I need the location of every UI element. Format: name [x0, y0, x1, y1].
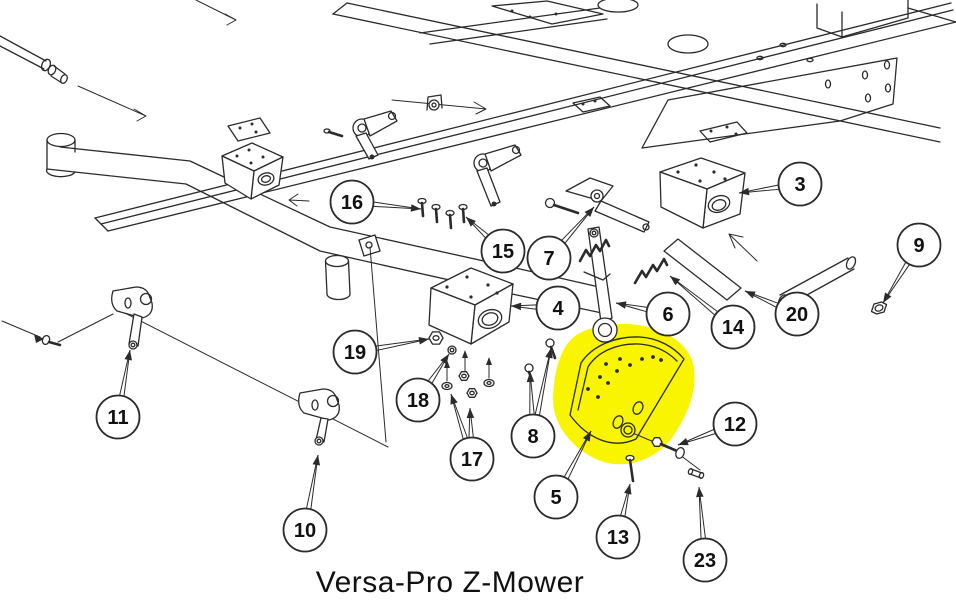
balloon-8: 8 — [512, 348, 555, 458]
balloon-13-number: 13 — [607, 527, 629, 549]
balloon-9-number: 9 — [913, 235, 924, 257]
diagram-caption: Versa-Pro Z-Mower — [0, 566, 900, 600]
balloon-6-number: 6 — [662, 304, 673, 326]
balloon-19-number: 19 — [344, 342, 366, 364]
balloon-12-number: 12 — [724, 414, 746, 436]
deck-frame-line-art — [0, 0, 956, 261]
caster-mount-part3 — [660, 158, 745, 228]
balloon-5-number: 5 — [550, 487, 561, 509]
balloon-7-number: 7 — [543, 248, 554, 270]
balloon-layer: 1615739461420191817811105121323 — [97, 163, 941, 582]
balloon-4: 4 — [511, 287, 580, 330]
balloon-20: 20 — [745, 291, 819, 336]
balloon-16-number: 16 — [341, 192, 363, 214]
balloon-4-number: 4 — [552, 298, 564, 320]
balloon-7: 7 — [528, 207, 595, 280]
balloon-17: 17 — [450, 394, 493, 481]
balloon-3-number: 3 — [794, 174, 805, 196]
balloon-18: 18 — [397, 354, 450, 422]
diagram-canvas: 1615739461420191817811105121323 Versa-Pr… — [0, 0, 956, 610]
balloon-19: 19 — [334, 331, 430, 374]
balloon-11-number: 11 — [107, 407, 128, 429]
exploded-parts-drawing: 1615739461420191817811105121323 — [0, 0, 956, 610]
balloon-10-number: 10 — [294, 520, 316, 542]
balloon-8-number: 8 — [527, 426, 538, 448]
balloon-18-number: 18 — [407, 390, 429, 412]
balloon-15-number: 15 — [492, 241, 514, 263]
balloon-11: 11 — [97, 350, 140, 439]
balloon-3: 3 — [739, 163, 822, 206]
balloon-12: 12 — [678, 403, 757, 446]
caster-mount-part4 — [429, 268, 513, 344]
balloon-20-number: 20 — [786, 304, 808, 326]
balloon-15: 15 — [466, 217, 525, 273]
balloon-14-number: 14 — [722, 317, 745, 339]
balloon-16: 16 — [331, 181, 422, 224]
balloon-9: 9 — [883, 224, 941, 304]
balloon-10: 10 — [284, 455, 327, 552]
balloon-13: 13 — [597, 484, 640, 559]
balloon-17-number: 17 — [461, 449, 483, 471]
